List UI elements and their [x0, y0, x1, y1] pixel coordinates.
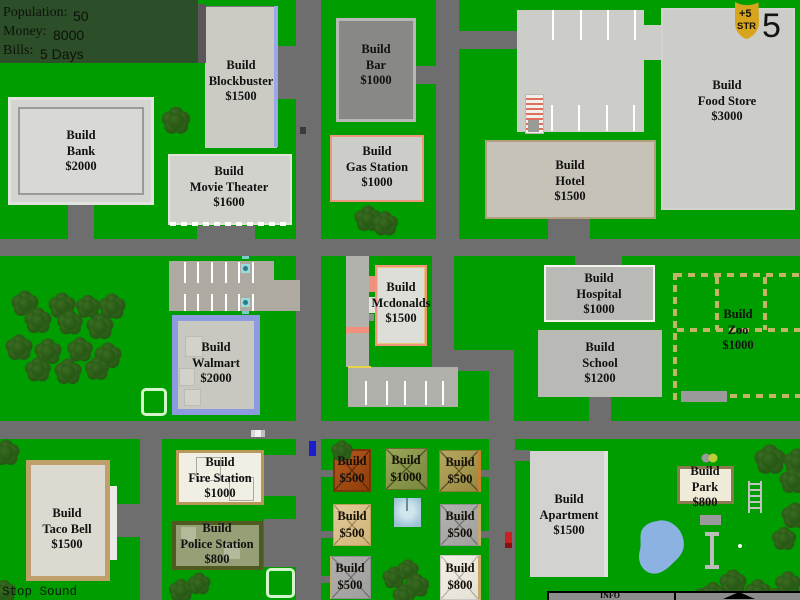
svg-text:+5: +5: [739, 8, 752, 20]
svg-text:STR: STR: [737, 21, 756, 32]
